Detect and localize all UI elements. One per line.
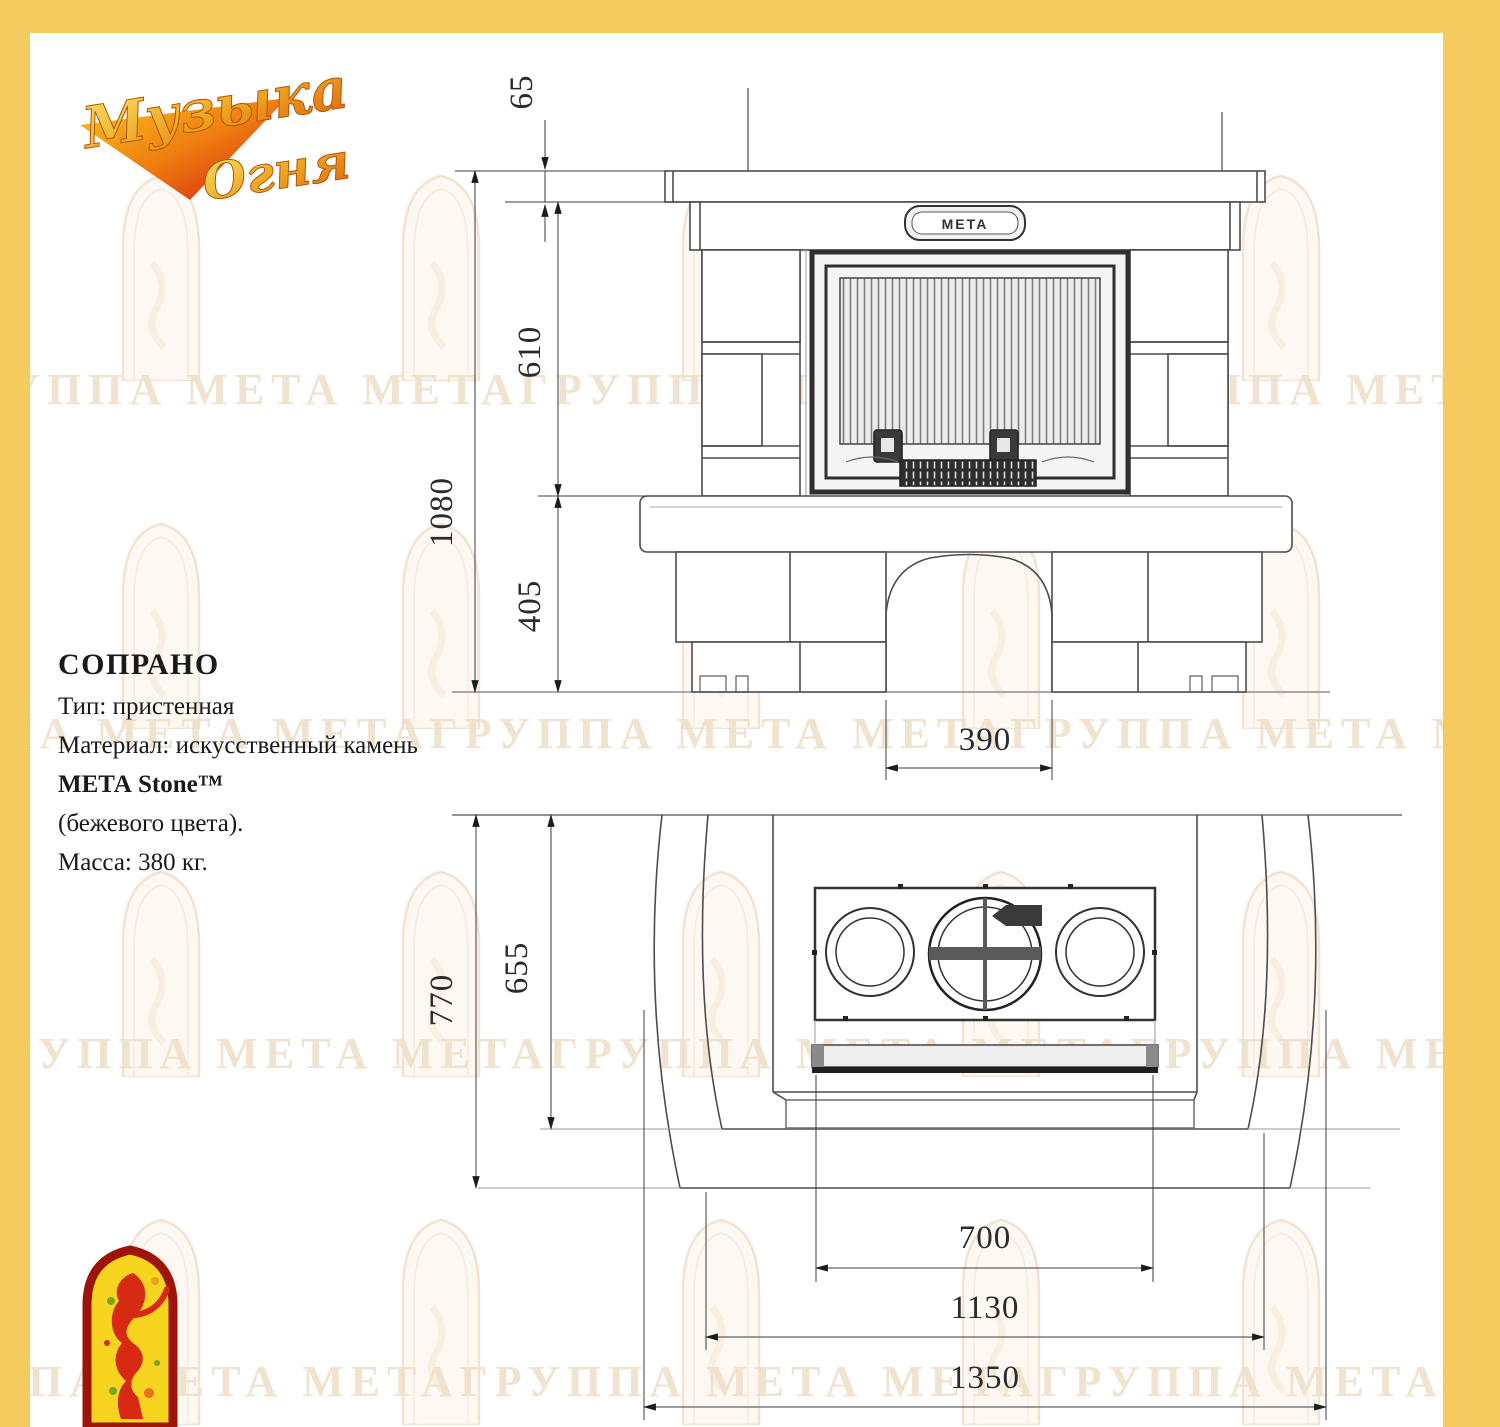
dim-label-770: 770 [424,974,460,1027]
insert-front-band [812,1045,1158,1067]
dim-label-405: 405 [512,580,548,633]
brand-plate: МЕТА [905,206,1025,240]
spec-sheet-page: ГРУППА МЕТА МЕТАГРУППА МЕТА МЕТАГРУППА М… [0,0,1500,1427]
dim-label-65: 65 [504,75,540,110]
hearth-strip [786,1100,1194,1128]
technical-drawing-canvas: ГРУППА МЕТА МЕТАГРУППА МЕТА МЕТАГРУППА М… [0,0,1500,1427]
product-type: Тип: пристенная [58,693,235,720]
flue-outlet-center [929,898,1042,1010]
product-mass: Масса: 380 кг. [58,849,208,876]
dim-label-1350: 1350 [950,1360,1020,1396]
bench-slab [640,496,1292,552]
dim-label-1080: 1080 [424,477,460,547]
ash-vent-grille [900,460,1036,486]
product-title: СОПРАНО [58,648,220,681]
watermark-row: ГРУППА МЕТА МЕТАГРУППА МЕТА МЕТАГРУППА М… [0,1357,1500,1406]
brand-plate-label: МЕТА [942,216,989,232]
right-column [1130,250,1228,496]
product-material-2: МЕТА Stone™ [58,771,223,798]
dim-label-655: 655 [499,942,535,995]
meta-emblem [87,1250,173,1427]
product-material-1: Материал: искусственный камень [58,732,418,759]
watermark-row: ГРУППА МЕТА МЕТАГРУППА МЕТА МЕТАГРУППА М… [0,1029,1500,1078]
left-column [702,250,800,496]
dim-label-610: 610 [512,326,548,379]
product-material-3: (бежевого цвета). [58,810,243,837]
dim-label-390: 390 [959,722,1012,758]
firebox-glass-door [840,278,1100,444]
firebox-insert [812,252,1128,492]
dim-label-1130: 1130 [951,1290,1020,1326]
mantel-shelf [665,171,1265,202]
dim-label-700: 700 [959,1220,1012,1256]
